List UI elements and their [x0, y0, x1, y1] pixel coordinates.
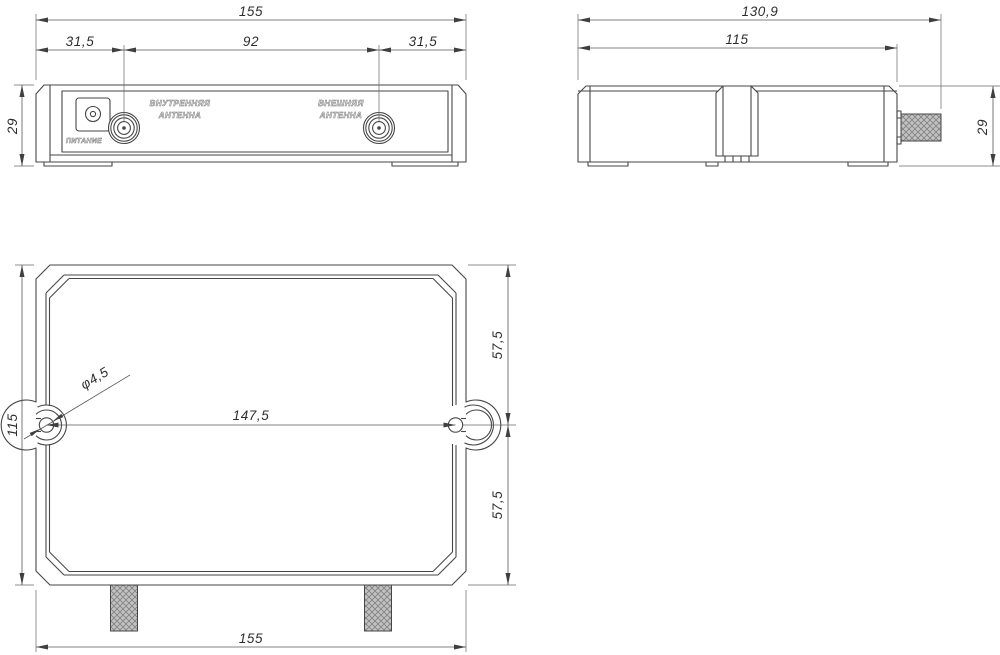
dim-text-slot-to-bottom: 57,5: [490, 491, 505, 520]
side-foot: [588, 162, 628, 166]
stud-thread: [901, 114, 941, 141]
front-view: ПИТАНИЕ ВНУТРЕННЯЯ АНТЕННА ВНЕШНЯЯ АНТЕН…: [5, 4, 466, 166]
threaded-stud: [111, 585, 138, 631]
dim-text-right-offset: 31,5: [409, 34, 438, 49]
front-enclosure-outline: [36, 85, 466, 162]
dim-text-left-offset: 31,5: [66, 34, 95, 49]
dim-text-total-width: 155: [239, 631, 263, 646]
bottom-view: 115 155 57,5 57,5 147,5 φ4,5: [1, 265, 516, 652]
dim-text-height: 29: [5, 118, 20, 135]
dim-text-plate-height: 115: [5, 413, 20, 436]
stud-flange: [897, 111, 901, 118]
front-left-foot: [44, 162, 112, 166]
power-label: ПИТАНИЕ: [66, 138, 102, 145]
dim-text-slot-to-top: 57,5: [490, 331, 505, 360]
internal-antenna-label-line1: ВНУТРЕННЯЯ: [150, 99, 211, 108]
external-antenna-label-line2: АНТЕННА: [319, 111, 363, 120]
dim-text-total-width: 155: [239, 4, 263, 19]
threaded-antenna-stud: [897, 111, 941, 144]
bracket-tab-outline: [716, 86, 758, 156]
dim-text-body-depth: 115: [725, 32, 748, 47]
dim-text-height: 29: [975, 119, 990, 136]
side-foot: [848, 162, 888, 166]
dim-text-slot-span: 147,5: [233, 408, 270, 423]
external-antenna-label-line1: ВНЕШНЯЯ: [318, 99, 364, 108]
internal-antenna-label-line2: АНТЕННА: [158, 111, 202, 120]
side-foot: [706, 162, 718, 166]
dim-text-total-depth: 130,9: [742, 4, 779, 19]
front-right-foot: [392, 162, 458, 166]
side-view: 130,9 115 29: [578, 4, 1000, 166]
dim-text-connector-span: 92: [243, 34, 259, 49]
stud-flange: [897, 137, 901, 144]
drawing-svg: ПИТАНИЕ ВНУТРЕННЯЯ АНТЕННА ВНЕШНЯЯ АНТЕН…: [0, 0, 1000, 655]
mounting-bracket-tab: [716, 86, 758, 162]
connector-center-pin: [122, 126, 126, 130]
connector-center-pin: [377, 126, 381, 130]
technical-drawing-canvas: ПИТАНИЕ ВНУТРЕННЯЯ АНТЕННА ВНЕШНЯЯ АНТЕН…: [0, 0, 1000, 655]
threaded-stud: [365, 585, 392, 631]
